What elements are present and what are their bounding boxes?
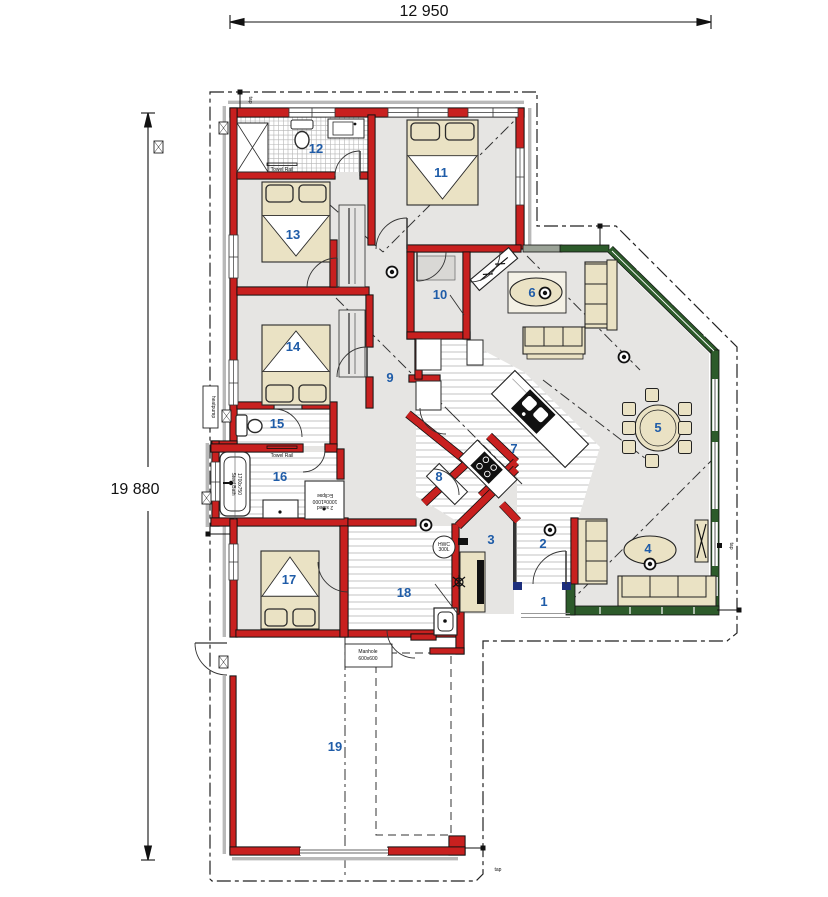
svg-text:7: 7 bbox=[510, 441, 517, 456]
svg-text:Towel Rail: Towel Rail bbox=[271, 453, 294, 459]
svg-text:17: 17 bbox=[282, 572, 296, 587]
svg-text:3: 3 bbox=[487, 532, 494, 547]
svg-text:18: 18 bbox=[397, 585, 411, 600]
svg-text:19 880: 19 880 bbox=[111, 481, 160, 498]
svg-text:2: 2 bbox=[539, 536, 546, 551]
svg-text:13: 13 bbox=[286, 227, 300, 242]
svg-text:tap: tap bbox=[728, 543, 734, 550]
svg-text:Manhole: Manhole bbox=[358, 649, 377, 655]
svg-text:10: 10 bbox=[433, 287, 447, 302]
svg-text:9: 9 bbox=[386, 370, 393, 385]
svg-text:Steel Bath: Steel Bath bbox=[230, 472, 236, 495]
svg-text:1: 1 bbox=[540, 594, 547, 609]
svg-text:19: 19 bbox=[328, 739, 342, 754]
svg-text:tap: tap bbox=[247, 97, 253, 104]
svg-text:600x600: 600x600 bbox=[358, 656, 377, 662]
svg-text:tap: tap bbox=[495, 867, 502, 873]
svg-text:Eclipse: Eclipse bbox=[317, 492, 333, 498]
svg-text:4: 4 bbox=[644, 541, 652, 556]
svg-text:6: 6 bbox=[528, 285, 535, 300]
svg-text:1000x1000: 1000x1000 bbox=[312, 498, 337, 504]
svg-text:11: 11 bbox=[434, 165, 448, 180]
svg-text:5: 5 bbox=[654, 420, 661, 435]
svg-text:12: 12 bbox=[309, 141, 323, 156]
svg-text:heatpump: heatpump bbox=[210, 396, 216, 418]
svg-text:300L: 300L bbox=[438, 547, 449, 553]
svg-text:14: 14 bbox=[286, 339, 301, 354]
svg-text:12 950: 12 950 bbox=[400, 3, 449, 20]
svg-text:15: 15 bbox=[270, 416, 284, 431]
svg-text:Towel Rail: Towel Rail bbox=[271, 167, 294, 173]
svg-text:8: 8 bbox=[435, 469, 442, 484]
svg-text:16: 16 bbox=[273, 469, 287, 484]
